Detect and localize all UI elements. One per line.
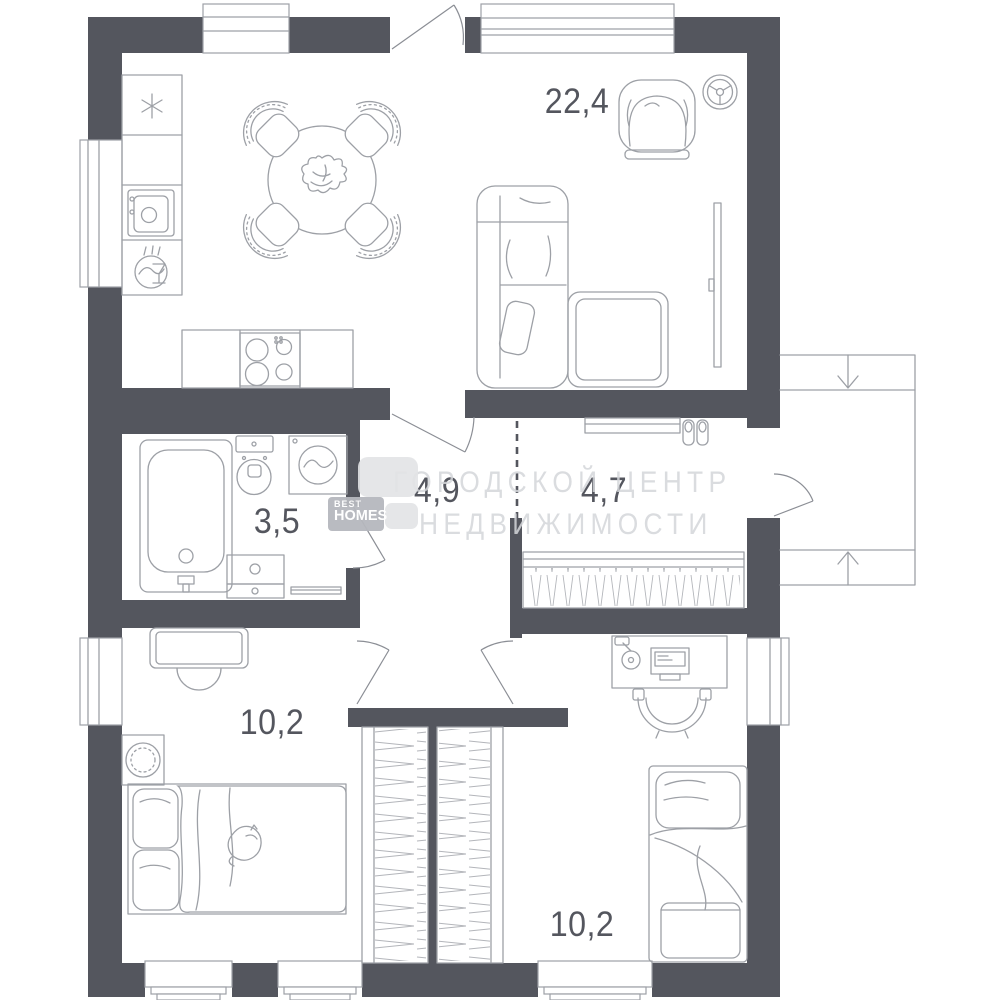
dishwasher-icon [135,246,167,288]
desk-lamp-icon [615,637,640,669]
step-arrow-up-icon [838,552,858,585]
wall-segment [652,963,780,997]
area-label-bedroom-right: 10,2 [550,905,615,945]
bedroom-left-window-bottom-1 [145,961,232,1000]
entrance-porch [780,355,915,585]
wall-segment [88,725,122,997]
wall-segment [362,963,538,997]
wall-segment [346,568,360,600]
bedroom-left [122,628,428,963]
logo-square-icon [358,457,418,497]
mirror-icon [177,668,221,690]
living-window-top [481,4,674,53]
bedroom-left-window-side [80,638,122,725]
wall-segment [122,420,360,434]
bathroom [140,436,347,598]
vanity-icon [227,555,284,598]
wall-segment [122,600,360,628]
wall-segment [88,963,145,997]
kitchen [122,75,412,388]
wall-segment [747,725,780,997]
wall-segment [428,727,437,963]
floor-plan-drawing [0,0,1000,1000]
watermark-line-2: НЕДВИЖИМОСТИ [419,508,713,542]
console-shelf-icon [585,418,680,433]
bedroom-right-door-icon [481,641,513,704]
sofa-icon [477,186,668,388]
area-label-living-kitchen: 22,4 [545,82,610,122]
laptop-icon [651,648,689,680]
towel-rail-icon [291,587,341,594]
logo-badge: BEST HOMES [328,497,384,531]
wall-segment [465,390,747,418]
desk-icon [612,636,727,688]
stove-icon [240,333,300,386]
logo-text-homes: HOMES [334,509,384,524]
sink-icon [128,190,174,236]
desk-chair-icon [633,689,711,738]
sofa-pillow-icon [498,300,536,357]
ceiling-fan-icon [703,75,737,109]
snowflake-icon [142,94,162,118]
wall-segment [510,608,747,634]
wall-segment [747,17,780,428]
area-label-bedroom-left: 10,2 [240,703,305,743]
watermark-line-1: ГОРОДСКОЙ ЦЕНТР [393,466,731,500]
shoes-icon [683,420,708,445]
floor-plan: 22,4 4,9 4,7 3,5 10,2 10,2 ГОРОДСКОЙ ЦЕН… [0,0,1000,1000]
washing-machine-icon [289,436,347,494]
wall-segment [232,963,278,997]
living-to-hall-door-icon [392,414,474,452]
armchair-icon [619,80,695,159]
kitchen-window-left [80,140,122,287]
wall-segment [287,17,390,53]
wall-segment [747,518,780,638]
wall-segment [88,17,122,140]
wardrobe-icon [437,727,503,963]
bedroom-right-window-bottom [538,961,652,1000]
kitchen-window-top [203,4,289,53]
toilet-icon [236,436,273,495]
logo-square-icon [385,503,418,529]
entrance-door-icon [774,474,813,516]
wall-segment [88,287,122,638]
tv-icon [709,203,721,367]
bedroom-left-window-bottom-2 [278,961,362,1000]
wall-segment [348,708,568,727]
wardrobe-icon [362,727,428,963]
bedroom-right-window-side [747,638,789,725]
wall-segment [465,17,483,53]
bathtub-icon [140,440,232,592]
terrace-door-icon [392,5,463,49]
wall-segment [122,388,390,420]
area-label-bathroom: 3,5 [254,502,300,542]
hall-wardrobe-icon [523,552,744,608]
single-bed-icon [649,766,747,962]
radiator-icon [122,735,164,785]
step-arrow-down-icon [838,355,858,388]
dresser-icon [150,628,248,690]
bedroom-left-door-icon [357,641,389,704]
double-bed-icon [128,784,346,914]
